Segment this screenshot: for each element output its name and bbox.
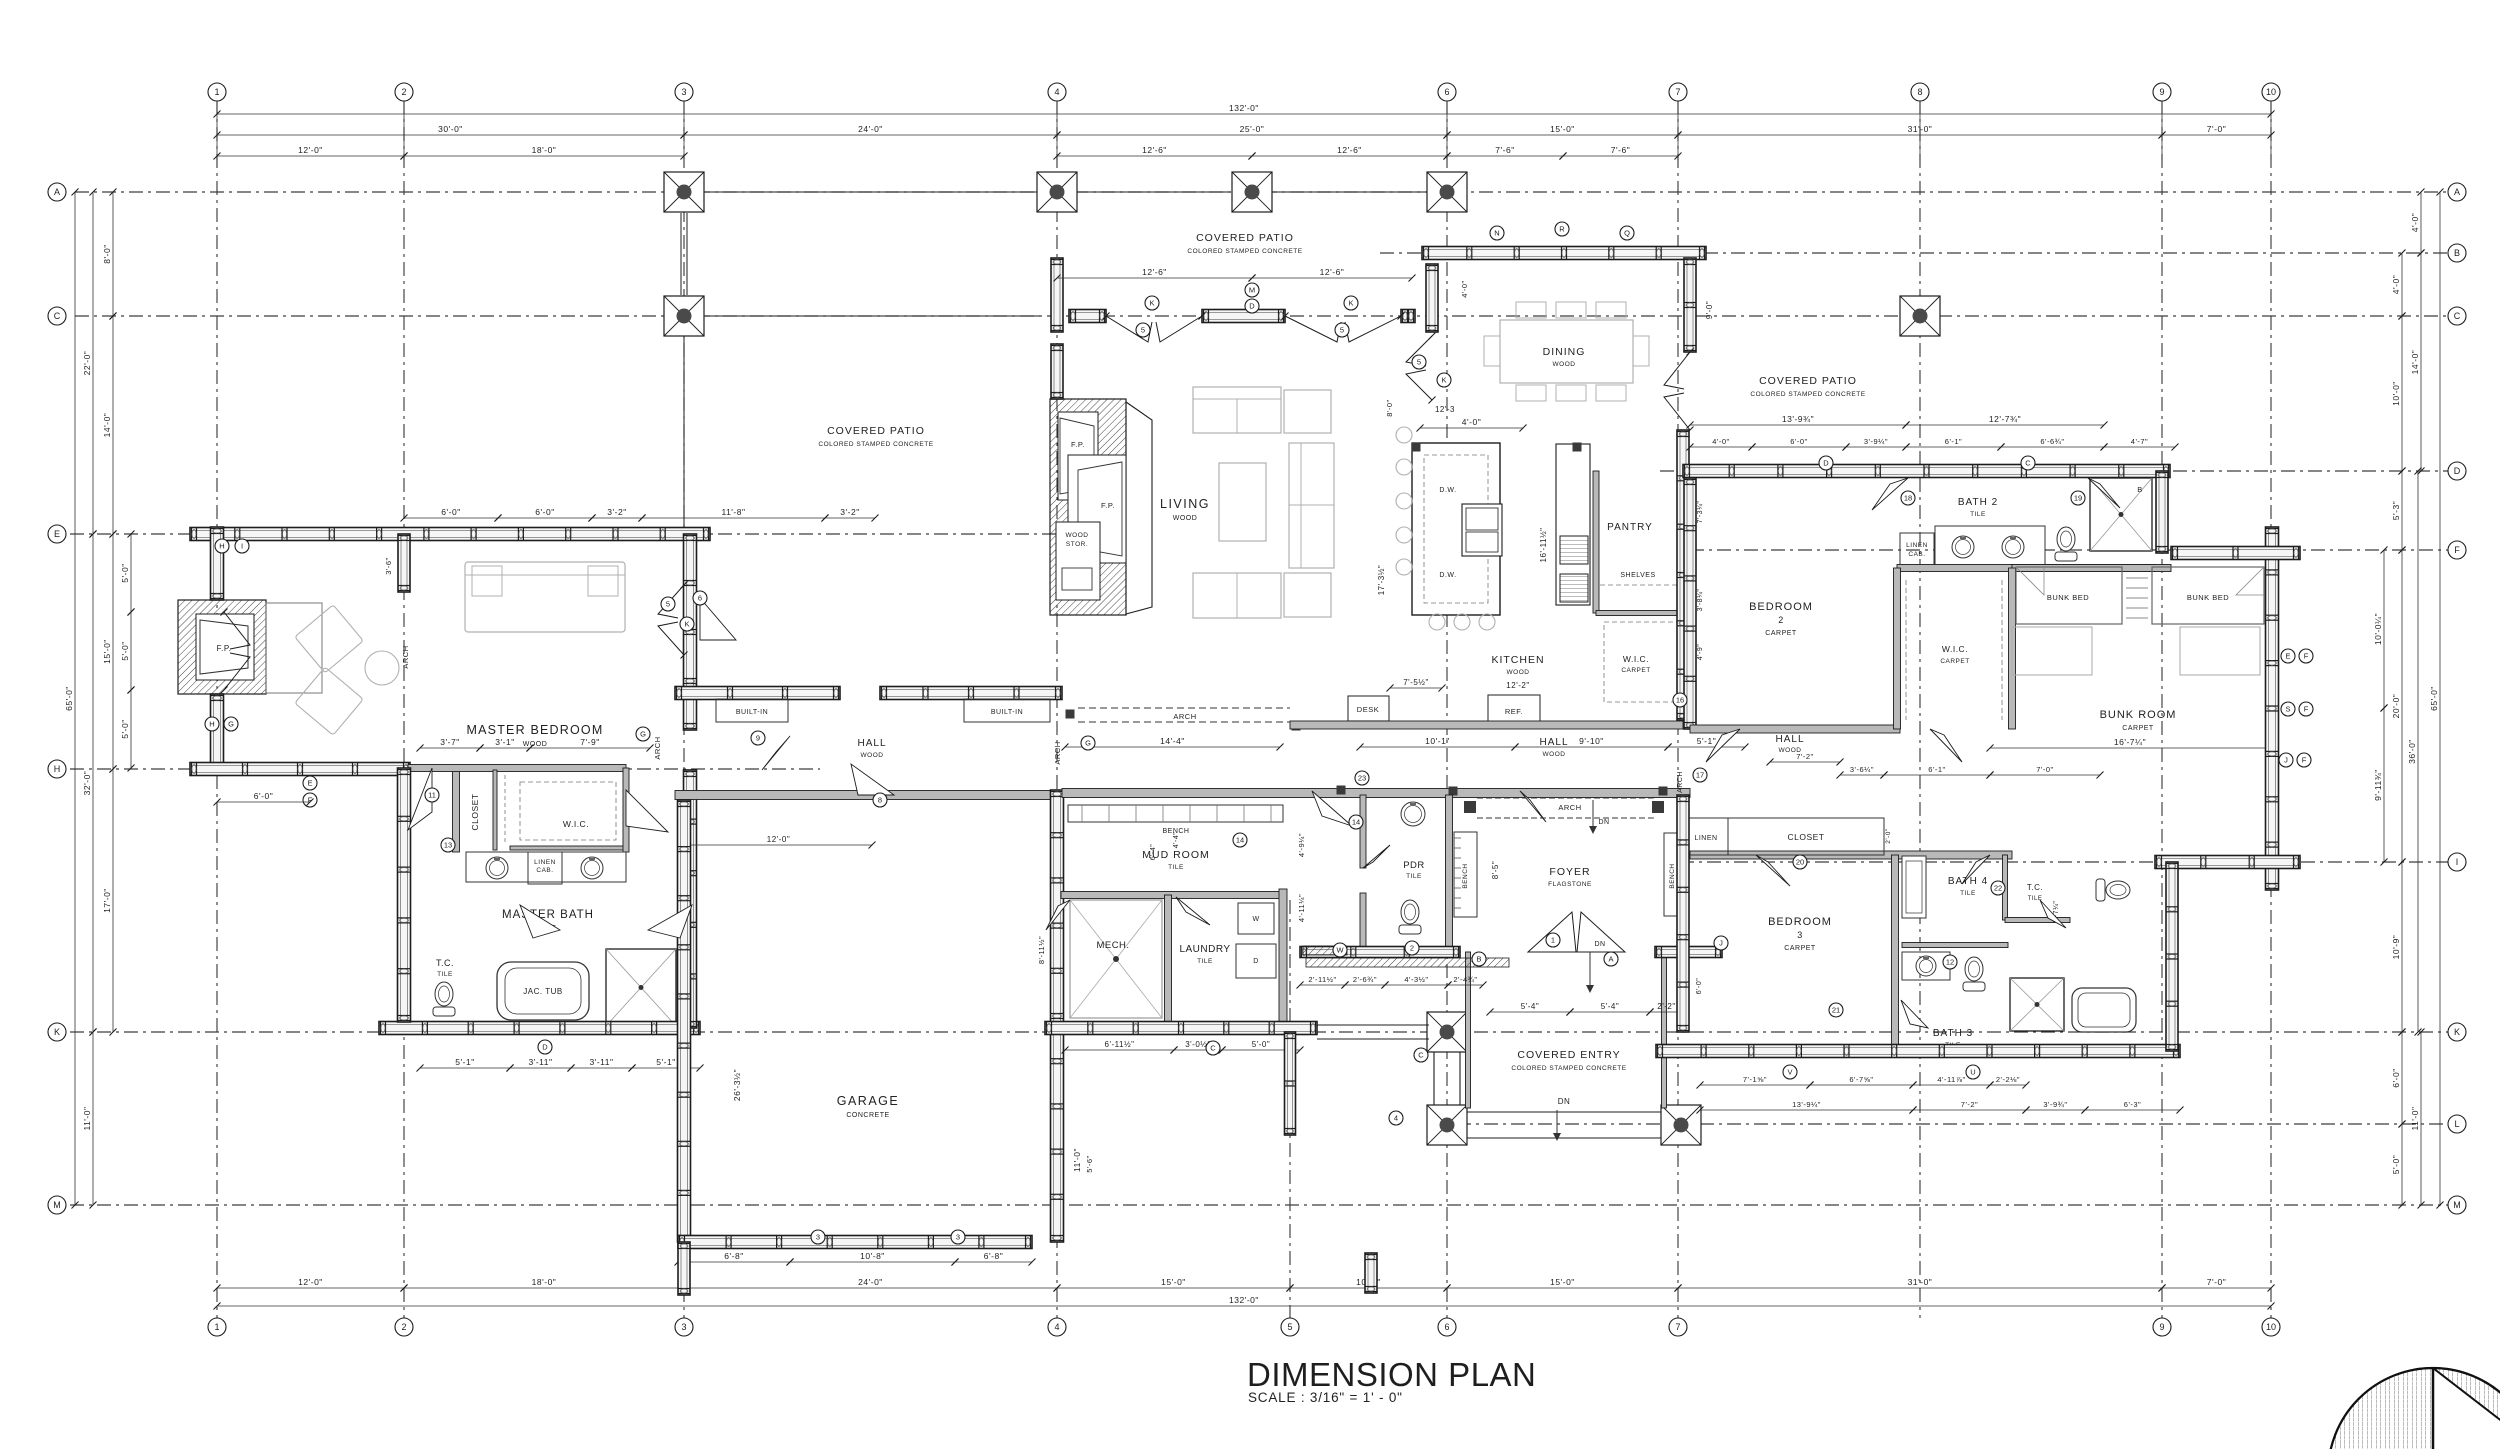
svg-text:14: 14 (1352, 818, 1360, 827)
svg-text:17: 17 (1696, 771, 1704, 780)
svg-text:16: 16 (1676, 696, 1684, 705)
svg-text:JAC. TUB: JAC. TUB (523, 987, 562, 996)
svg-text:7'-6": 7'-6" (1611, 145, 1630, 155)
svg-text:4'-9¼": 4'-9¼" (1297, 833, 1306, 857)
svg-text:3: 3 (681, 1322, 686, 1332)
svg-text:SHELVES: SHELVES (1620, 572, 1655, 579)
svg-text:4'-7": 4'-7" (2131, 437, 2148, 446)
svg-text:6'-11½": 6'-11½" (1105, 1040, 1135, 1049)
svg-text:DN: DN (1598, 819, 1609, 826)
svg-text:R: R (1559, 225, 1565, 234)
svg-text:ARCH: ARCH (401, 645, 410, 668)
svg-text:H: H (54, 764, 61, 774)
svg-text:6'-7⅝": 6'-7⅝" (1849, 1075, 1873, 1084)
svg-text:COLORED STAMPED CONCRETE: COLORED STAMPED CONCRETE (1750, 391, 1865, 398)
svg-text:I: I (2456, 857, 2459, 867)
svg-text:12'-2": 12'-2" (1506, 681, 1529, 690)
svg-text:WOOD: WOOD (1507, 669, 1530, 676)
svg-text:12'-6": 12'-6" (1142, 267, 1167, 277)
svg-text:C: C (1210, 1044, 1216, 1053)
svg-text:C: C (2025, 459, 2031, 468)
svg-text:4'-0": 4'-0" (1712, 437, 1729, 446)
svg-text:PDR: PDR (1403, 860, 1425, 871)
svg-text:6'-1": 6'-1" (1928, 765, 1945, 774)
svg-text:B: B (2137, 485, 2143, 494)
svg-text:M: M (1249, 286, 1255, 295)
svg-text:14: 14 (1236, 836, 1244, 845)
svg-text:14'-0": 14'-0" (2410, 350, 2420, 375)
svg-text:7'-0": 7'-0" (2207, 124, 2226, 134)
svg-text:DN: DN (1558, 1097, 1571, 1106)
svg-text:5'-0": 5'-0" (1252, 1040, 1270, 1049)
svg-text:LINEN: LINEN (534, 859, 556, 866)
svg-text:G: G (640, 730, 646, 739)
svg-text:10: 10 (2266, 87, 2276, 97)
svg-text:CARPET: CARPET (1621, 667, 1650, 674)
svg-text:3: 3 (816, 1233, 820, 1242)
svg-text:BUNK ROOM: BUNK ROOM (2100, 709, 2177, 721)
svg-text:9: 9 (756, 734, 760, 743)
svg-text:5'-1": 5'-1" (455, 1057, 474, 1067)
svg-text:6'-0": 6'-0" (2391, 1068, 2401, 1087)
svg-text:BATH 2: BATH 2 (1958, 497, 1998, 508)
svg-text:N: N (1494, 229, 1499, 238)
svg-text:6'-1": 6'-1" (1945, 437, 1962, 446)
svg-text:4'-0": 4'-0" (1460, 280, 1469, 297)
svg-text:2: 2 (401, 87, 406, 97)
svg-text:10'-1": 10'-1" (1425, 736, 1450, 746)
svg-text:BUILT-IN: BUILT-IN (736, 709, 768, 716)
svg-text:10'-0¼": 10'-0¼" (2373, 613, 2383, 645)
svg-text:3'-8¼": 3'-8¼" (1697, 589, 1704, 612)
svg-text:COVERED PATIO: COVERED PATIO (827, 425, 925, 437)
svg-text:5'-0": 5'-0" (120, 719, 130, 738)
svg-text:F: F (2304, 652, 2309, 661)
svg-text:BENCH: BENCH (1162, 828, 1189, 835)
svg-text:W.I.C.: W.I.C. (1942, 644, 1968, 654)
svg-text:10'-9": 10'-9" (2391, 935, 2401, 960)
svg-text:3: 3 (1797, 930, 1803, 940)
svg-text:6'-0": 6'-0" (535, 507, 554, 517)
svg-text:5: 5 (1340, 326, 1344, 335)
svg-text:K: K (2454, 1027, 2460, 1037)
svg-text:FLAGSTONE: FLAGSTONE (1548, 881, 1592, 888)
svg-text:TILE: TILE (437, 971, 453, 978)
svg-text:132'-0": 132'-0" (1229, 103, 1259, 113)
svg-text:24'-0": 24'-0" (858, 1277, 883, 1287)
svg-text:5'-0": 5'-0" (2391, 1155, 2401, 1174)
svg-text:5: 5 (666, 600, 670, 609)
svg-text:3'-9¼": 3'-9¼" (1864, 437, 1888, 446)
svg-text:U: U (1970, 1068, 1975, 1077)
svg-text:COVERED PATIO: COVERED PATIO (1759, 375, 1857, 387)
svg-text:CARPET: CARPET (1784, 945, 1816, 952)
svg-text:G: G (1085, 739, 1091, 748)
svg-text:GARAGE: GARAGE (837, 1094, 900, 1108)
svg-text:A: A (2454, 187, 2460, 197)
svg-text:2'-11½": 2'-11½" (1308, 975, 1336, 984)
svg-text:B: B (2454, 248, 2460, 258)
svg-text:5: 5 (1287, 1322, 1292, 1332)
svg-text:MECH.: MECH. (1096, 940, 1129, 951)
svg-text:6: 6 (1444, 87, 1449, 97)
svg-text:3'-11": 3'-11" (589, 1057, 613, 1067)
svg-text:W: W (1336, 946, 1344, 955)
svg-text:21: 21 (1832, 1006, 1840, 1015)
svg-text:2'-4¾": 2'-4¾" (1453, 975, 1477, 984)
svg-text:6'-3": 6'-3" (2124, 1100, 2141, 1109)
svg-text:8'-11½": 8'-11½" (1037, 936, 1046, 964)
svg-text:12'-6": 12'-6" (1142, 145, 1167, 155)
svg-text:LAUNDRY: LAUNDRY (1179, 944, 1230, 955)
svg-text:T.C.: T.C. (436, 958, 454, 968)
svg-text:25'-0": 25'-0" (1240, 124, 1265, 134)
svg-text:3'-1": 3'-1" (495, 737, 514, 747)
svg-text:E: E (2285, 652, 2290, 661)
svg-text:7'-5½": 7'-5½" (1403, 678, 1429, 687)
svg-text:DINING: DINING (1543, 346, 1586, 358)
svg-text:26'-3½": 26'-3½" (732, 1069, 742, 1101)
svg-text:BATH 3: BATH 3 (1933, 1028, 1973, 1039)
svg-text:I: I (241, 542, 243, 551)
svg-text:18'-0": 18'-0" (532, 145, 557, 155)
svg-text:11'-0": 11'-0" (82, 1106, 92, 1130)
svg-text:5'-6": 5'-6" (1085, 1155, 1094, 1172)
svg-text:12'-6": 12'-6" (1320, 267, 1345, 277)
svg-text:F: F (2454, 545, 2460, 555)
svg-text:K: K (1149, 299, 1154, 308)
svg-text:LINEN: LINEN (1906, 542, 1928, 549)
svg-text:F.P.: F.P. (1101, 501, 1115, 510)
svg-text:12'-0": 12'-0" (298, 145, 323, 155)
svg-text:10'-0": 10'-0" (2391, 381, 2401, 406)
svg-text:K: K (1348, 299, 1353, 308)
svg-text:COVERED PATIO: COVERED PATIO (1196, 232, 1294, 244)
svg-text:TILE: TILE (1406, 873, 1422, 880)
svg-text:2: 2 (401, 1322, 406, 1332)
svg-text:MUD ROOM: MUD ROOM (1142, 849, 1210, 861)
svg-text:11'-0": 11'-0" (2410, 1106, 2420, 1130)
svg-text:14'-0": 14'-0" (102, 413, 112, 438)
svg-text:12'-0": 12'-0" (298, 1277, 323, 1287)
svg-text:30'-0": 30'-0" (438, 124, 463, 134)
svg-text:3'-7": 3'-7" (440, 737, 459, 747)
svg-text:19: 19 (2074, 494, 2082, 503)
svg-text:8'-0": 8'-0" (102, 244, 112, 263)
svg-text:18: 18 (1904, 494, 1912, 503)
svg-text:3'-9¾": 3'-9¾" (2043, 1100, 2067, 1109)
svg-text:3'-6¼": 3'-6¼" (1850, 765, 1874, 774)
svg-text:CONCRETE: CONCRETE (846, 1112, 889, 1119)
svg-text:HALL: HALL (1539, 737, 1568, 748)
svg-text:ARCH: ARCH (1558, 803, 1581, 812)
svg-text:6'-0": 6'-0" (1696, 978, 1703, 994)
svg-text:DESK: DESK (1357, 705, 1379, 714)
svg-text:9: 9 (2159, 87, 2164, 97)
svg-text:12'-3: 12'-3 (1435, 405, 1455, 414)
svg-text:COLORED STAMPED CONCRETE: COLORED STAMPED CONCRETE (1511, 1065, 1626, 1072)
svg-text:2'-6¾": 2'-6¾" (1353, 975, 1377, 984)
svg-text:BEDROOM: BEDROOM (1749, 601, 1813, 613)
svg-text:KITCHEN: KITCHEN (1491, 654, 1544, 666)
svg-text:H: H (209, 720, 214, 729)
svg-text:WOOD: WOOD (1553, 361, 1576, 368)
svg-text:3'-6": 3'-6" (384, 557, 393, 574)
svg-text:3'-11": 3'-11" (528, 1057, 552, 1067)
svg-text:7'-3¼": 7'-3¼" (1697, 501, 1704, 524)
svg-text:K: K (54, 1027, 60, 1037)
svg-text:BENCH: BENCH (1669, 863, 1676, 888)
svg-text:6'-0": 6'-0" (254, 791, 273, 801)
svg-text:132'-0": 132'-0" (1229, 1295, 1259, 1305)
svg-text:ARCH: ARCH (1053, 741, 1062, 764)
svg-text:COVERED ENTRY: COVERED ENTRY (1517, 1049, 1620, 1061)
svg-text:13'-9¾": 13'-9¾" (1782, 414, 1814, 424)
svg-text:17'-0": 17'-0" (102, 888, 112, 913)
svg-text:F.P.: F.P. (217, 644, 232, 653)
svg-text:TILE: TILE (1168, 864, 1184, 871)
svg-text:CLOSET: CLOSET (1787, 832, 1824, 842)
svg-text:E: E (54, 529, 60, 539)
svg-text:15'-0": 15'-0" (1550, 1277, 1575, 1287)
svg-text:2'-0": 2'-0" (1885, 828, 1892, 844)
svg-text:7'-1⅝": 7'-1⅝" (1743, 1075, 1767, 1084)
svg-text:8'-0": 8'-0" (1385, 399, 1394, 416)
svg-text:M: M (2453, 1200, 2461, 1210)
svg-text:CARPET: CARPET (1765, 630, 1797, 637)
svg-text:A: A (54, 187, 60, 197)
svg-text:Q: Q (1624, 229, 1630, 238)
svg-text:REF.: REF. (1505, 707, 1523, 716)
svg-text:COLORED STAMPED CONCRETE: COLORED STAMPED CONCRETE (1187, 248, 1302, 255)
svg-text:D: D (1249, 302, 1255, 311)
svg-text:BUNK BED: BUNK BED (2187, 593, 2229, 602)
svg-text:65'-0": 65'-0" (2429, 686, 2439, 711)
svg-text:6: 6 (698, 594, 702, 603)
svg-text:MASTER BATH: MASTER BATH (502, 909, 594, 921)
svg-text:12: 12 (1946, 958, 1954, 967)
svg-text:5'-1": 5'-1" (656, 1057, 675, 1067)
svg-text:16'-11½": 16'-11½" (1539, 528, 1548, 563)
svg-text:DN: DN (1594, 941, 1605, 948)
svg-text:D: D (1823, 459, 1829, 468)
svg-text:PANTRY: PANTRY (1607, 522, 1653, 533)
svg-text:CLOSET: CLOSET (470, 793, 480, 830)
svg-text:11'-8": 11'-8" (721, 507, 745, 517)
svg-text:HALL: HALL (857, 738, 886, 749)
svg-text:32'-0": 32'-0" (82, 771, 92, 796)
svg-text:T.C.: T.C. (2027, 883, 2043, 892)
svg-text:16'-7¼": 16'-7¼" (2114, 737, 2146, 747)
svg-text:7: 7 (1675, 87, 1680, 97)
svg-text:F: F (2304, 705, 2309, 714)
svg-text:ARCH: ARCH (1173, 712, 1196, 721)
svg-text:C: C (54, 311, 61, 321)
svg-text:12'-6": 12'-6" (1337, 145, 1362, 155)
svg-text:2'-2⅛": 2'-2⅛" (1996, 1075, 2020, 1084)
svg-text:5: 5 (1417, 358, 1421, 367)
svg-text:7'-0": 7'-0" (2207, 1277, 2226, 1287)
svg-text:13: 13 (444, 841, 452, 850)
svg-text:8'-5": 8'-5" (1491, 861, 1500, 879)
svg-text:B: B (1476, 955, 1481, 964)
svg-text:C: C (2454, 311, 2461, 321)
svg-text:1: 1 (214, 87, 219, 97)
svg-text:LIVING: LIVING (1160, 497, 1210, 511)
svg-text:8: 8 (1917, 87, 1922, 97)
svg-text:J: J (1719, 939, 1723, 948)
svg-text:31'-0": 31'-0" (1908, 1277, 1933, 1287)
svg-text:5: 5 (1141, 326, 1145, 335)
svg-text:3: 3 (956, 1233, 960, 1242)
svg-text:G: G (228, 720, 234, 729)
svg-text:CARPET: CARPET (1940, 658, 1969, 665)
svg-text:12'-7¾": 12'-7¾" (1989, 414, 2021, 424)
svg-text:7'-9": 7'-9" (580, 737, 599, 747)
svg-text:7'-2": 7'-2" (1961, 1100, 1978, 1109)
svg-text:5'-4": 5'-4" (1521, 1002, 1539, 1011)
svg-text:4: 4 (1054, 1322, 1059, 1332)
svg-text:W.I.C.: W.I.C. (563, 819, 589, 829)
svg-text:ARCH: ARCH (653, 736, 662, 759)
svg-text:MASTER BEDROOM: MASTER BEDROOM (467, 723, 604, 737)
svg-text:4: 4 (1054, 87, 1059, 97)
svg-text:H: H (219, 542, 224, 551)
svg-text:2'-2": 2'-2" (1657, 1002, 1675, 1011)
svg-text:WOOD: WOOD (1543, 751, 1566, 758)
svg-text:D: D (542, 1043, 548, 1052)
svg-text:6'-8": 6'-8" (724, 1251, 743, 1261)
svg-text:TILE: TILE (1970, 511, 1986, 518)
svg-text:65'-0": 65'-0" (64, 686, 74, 711)
svg-text:CAB.: CAB. (1908, 551, 1925, 558)
svg-text:17'-3½": 17'-3½" (1377, 565, 1386, 596)
svg-text:6'-0": 6'-0" (441, 507, 460, 517)
svg-text:2: 2 (1410, 944, 1414, 953)
svg-text:W: W (1252, 916, 1259, 923)
svg-text:7: 7 (1675, 1322, 1680, 1332)
svg-text:BUNK BED: BUNK BED (2047, 593, 2089, 602)
svg-text:4'-0": 4'-0" (2410, 213, 2420, 232)
svg-text:WOOD: WOOD (1173, 515, 1198, 522)
svg-text:8: 8 (878, 796, 882, 805)
svg-text:D.W.: D.W. (1439, 487, 1456, 494)
svg-text:9'-0": 9'-0" (1705, 301, 1714, 319)
svg-text:10'-8": 10'-8" (860, 1251, 885, 1261)
svg-text:9: 9 (2159, 1322, 2164, 1332)
svg-text:FOYER: FOYER (1549, 866, 1590, 878)
svg-text:D: D (2454, 466, 2461, 476)
svg-text:4'-0": 4'-0" (1462, 417, 1481, 427)
svg-text:22: 22 (1994, 884, 2002, 893)
svg-text:3'-2": 3'-2" (607, 507, 626, 517)
svg-text:DIMENSION PLAN: DIMENSION PLAN (1247, 1356, 1536, 1393)
svg-text:BUILT-IN: BUILT-IN (991, 709, 1023, 716)
svg-text:11: 11 (428, 791, 436, 800)
svg-text:11'-0": 11'-0" (1072, 1148, 1082, 1172)
svg-text:5'-0": 5'-0" (120, 641, 130, 660)
svg-text:WOOD: WOOD (1779, 747, 1802, 754)
svg-text:9'-11¾": 9'-11¾" (2373, 769, 2383, 801)
svg-text:M: M (53, 1200, 61, 1210)
svg-text:6'-6¾": 6'-6¾" (2040, 437, 2064, 446)
svg-text:WOOD: WOOD (861, 752, 884, 759)
svg-text:5'-4": 5'-4" (1601, 1002, 1619, 1011)
svg-text:9'-10": 9'-10" (1579, 736, 1604, 746)
svg-text:CARPET: CARPET (2122, 725, 2154, 732)
svg-text:A: A (1608, 955, 1613, 964)
svg-text:WOOD: WOOD (523, 741, 548, 748)
svg-text:STOR.: STOR. (1066, 541, 1088, 548)
svg-text:E: E (307, 779, 312, 788)
svg-text:6'-0": 6'-0" (1790, 437, 1807, 446)
svg-text:4'-0": 4'-0" (2391, 275, 2401, 294)
svg-text:WOOD: WOOD (1066, 532, 1089, 539)
svg-text:20: 20 (1796, 858, 1804, 867)
svg-text:7'-0": 7'-0" (2036, 765, 2053, 774)
svg-text:12'-0": 12'-0" (767, 835, 790, 844)
svg-text:ARCH: ARCH (1677, 771, 1684, 793)
svg-text:CAB.: CAB. (536, 867, 553, 874)
svg-text:24'-0": 24'-0" (858, 124, 883, 134)
svg-text:22'-0": 22'-0" (82, 351, 92, 376)
svg-text:3: 3 (681, 87, 686, 97)
svg-text:4'-11⅞": 4'-11⅞" (1937, 1075, 1965, 1084)
svg-text:14'-4": 14'-4" (1160, 736, 1185, 746)
svg-text:COLORED STAMPED CONCRETE: COLORED STAMPED CONCRETE (818, 441, 933, 448)
svg-text:3'-2": 3'-2" (840, 507, 859, 517)
svg-text:20'-0": 20'-0" (2391, 694, 2401, 719)
svg-text:23: 23 (1358, 774, 1366, 783)
svg-text:4'-9": 4'-9" (1697, 644, 1704, 660)
svg-text:D.W.: D.W. (1439, 572, 1456, 579)
svg-text:K: K (1441, 376, 1446, 385)
svg-text:W.I.C.: W.I.C. (1623, 654, 1649, 664)
svg-text:S: S (2285, 705, 2290, 714)
svg-text:6: 6 (1444, 1322, 1449, 1332)
svg-text:6'-8": 6'-8" (984, 1251, 1003, 1261)
svg-text:15'-0": 15'-0" (102, 639, 112, 664)
svg-text:D: D (1253, 958, 1259, 965)
svg-text:L: L (2454, 1119, 2459, 1129)
svg-text:5'-3": 5'-3" (2391, 501, 2401, 520)
svg-text:5'-1": 5'-1" (1697, 736, 1716, 746)
svg-text:10: 10 (2266, 1322, 2276, 1332)
svg-text:K: K (684, 620, 689, 629)
svg-text:31'-0": 31'-0" (1908, 124, 1933, 134)
svg-text:1: 1 (214, 1322, 219, 1332)
svg-text:15'-0": 15'-0" (1550, 124, 1575, 134)
svg-text:TILE: TILE (1960, 890, 1976, 897)
svg-text:TILE: TILE (1197, 958, 1213, 965)
svg-text:4'-3½": 4'-3½" (1404, 975, 1428, 984)
svg-text:V: V (1787, 1068, 1792, 1077)
svg-text:4: 4 (1394, 1114, 1398, 1123)
svg-text:BENCH: BENCH (1462, 863, 1469, 888)
svg-text:36'-0": 36'-0" (2407, 739, 2417, 764)
svg-text:1: 1 (1551, 936, 1555, 945)
svg-text:18'-0": 18'-0" (532, 1277, 557, 1287)
svg-text:2: 2 (1778, 615, 1784, 625)
svg-text:F: F (2302, 756, 2307, 765)
svg-text:BEDROOM: BEDROOM (1768, 916, 1832, 928)
svg-text:C: C (1418, 1051, 1424, 1060)
svg-text:J: J (2284, 756, 2288, 765)
svg-text:4'-11¼": 4'-11¼" (1297, 894, 1306, 922)
svg-text:SCALE : 3/16" = 1' - 0": SCALE : 3/16" = 1' - 0" (1248, 1390, 1403, 1405)
svg-text:LINEN: LINEN (1694, 835, 1717, 842)
svg-text:7'-6": 7'-6" (1495, 145, 1514, 155)
